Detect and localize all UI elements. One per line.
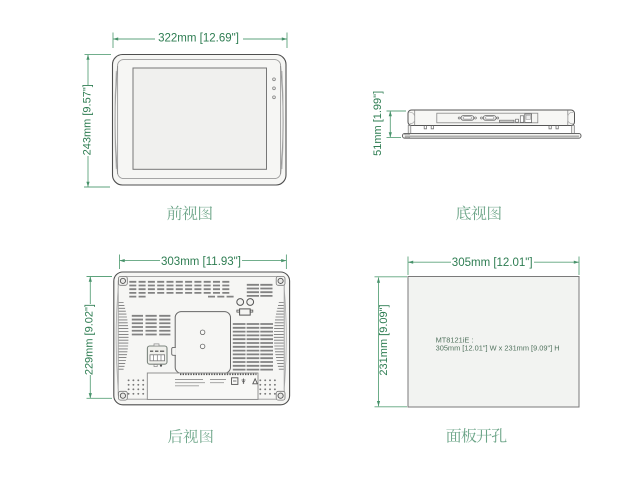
svg-text:243mm [9.57"]: 243mm [9.57"] [82, 84, 94, 155]
svg-text:229mm [9.02"]: 229mm [9.02"] [83, 304, 95, 375]
svg-text:51mm [1.99"]: 51mm [1.99"] [372, 91, 384, 156]
svg-text:305mm [12.01"] W x 231mm [9.09: 305mm [12.01"] W x 231mm [9.09"] H [436, 344, 560, 353]
svg-text:305mm [12.01"]: 305mm [12.01"] [452, 257, 533, 269]
svg-text:322mm [12.69"]: 322mm [12.69"] [158, 32, 239, 44]
svg-text:231mm [9.09"]: 231mm [9.09"] [378, 304, 390, 375]
svg-text:303mm [11.93"]: 303mm [11.93"] [161, 256, 241, 268]
